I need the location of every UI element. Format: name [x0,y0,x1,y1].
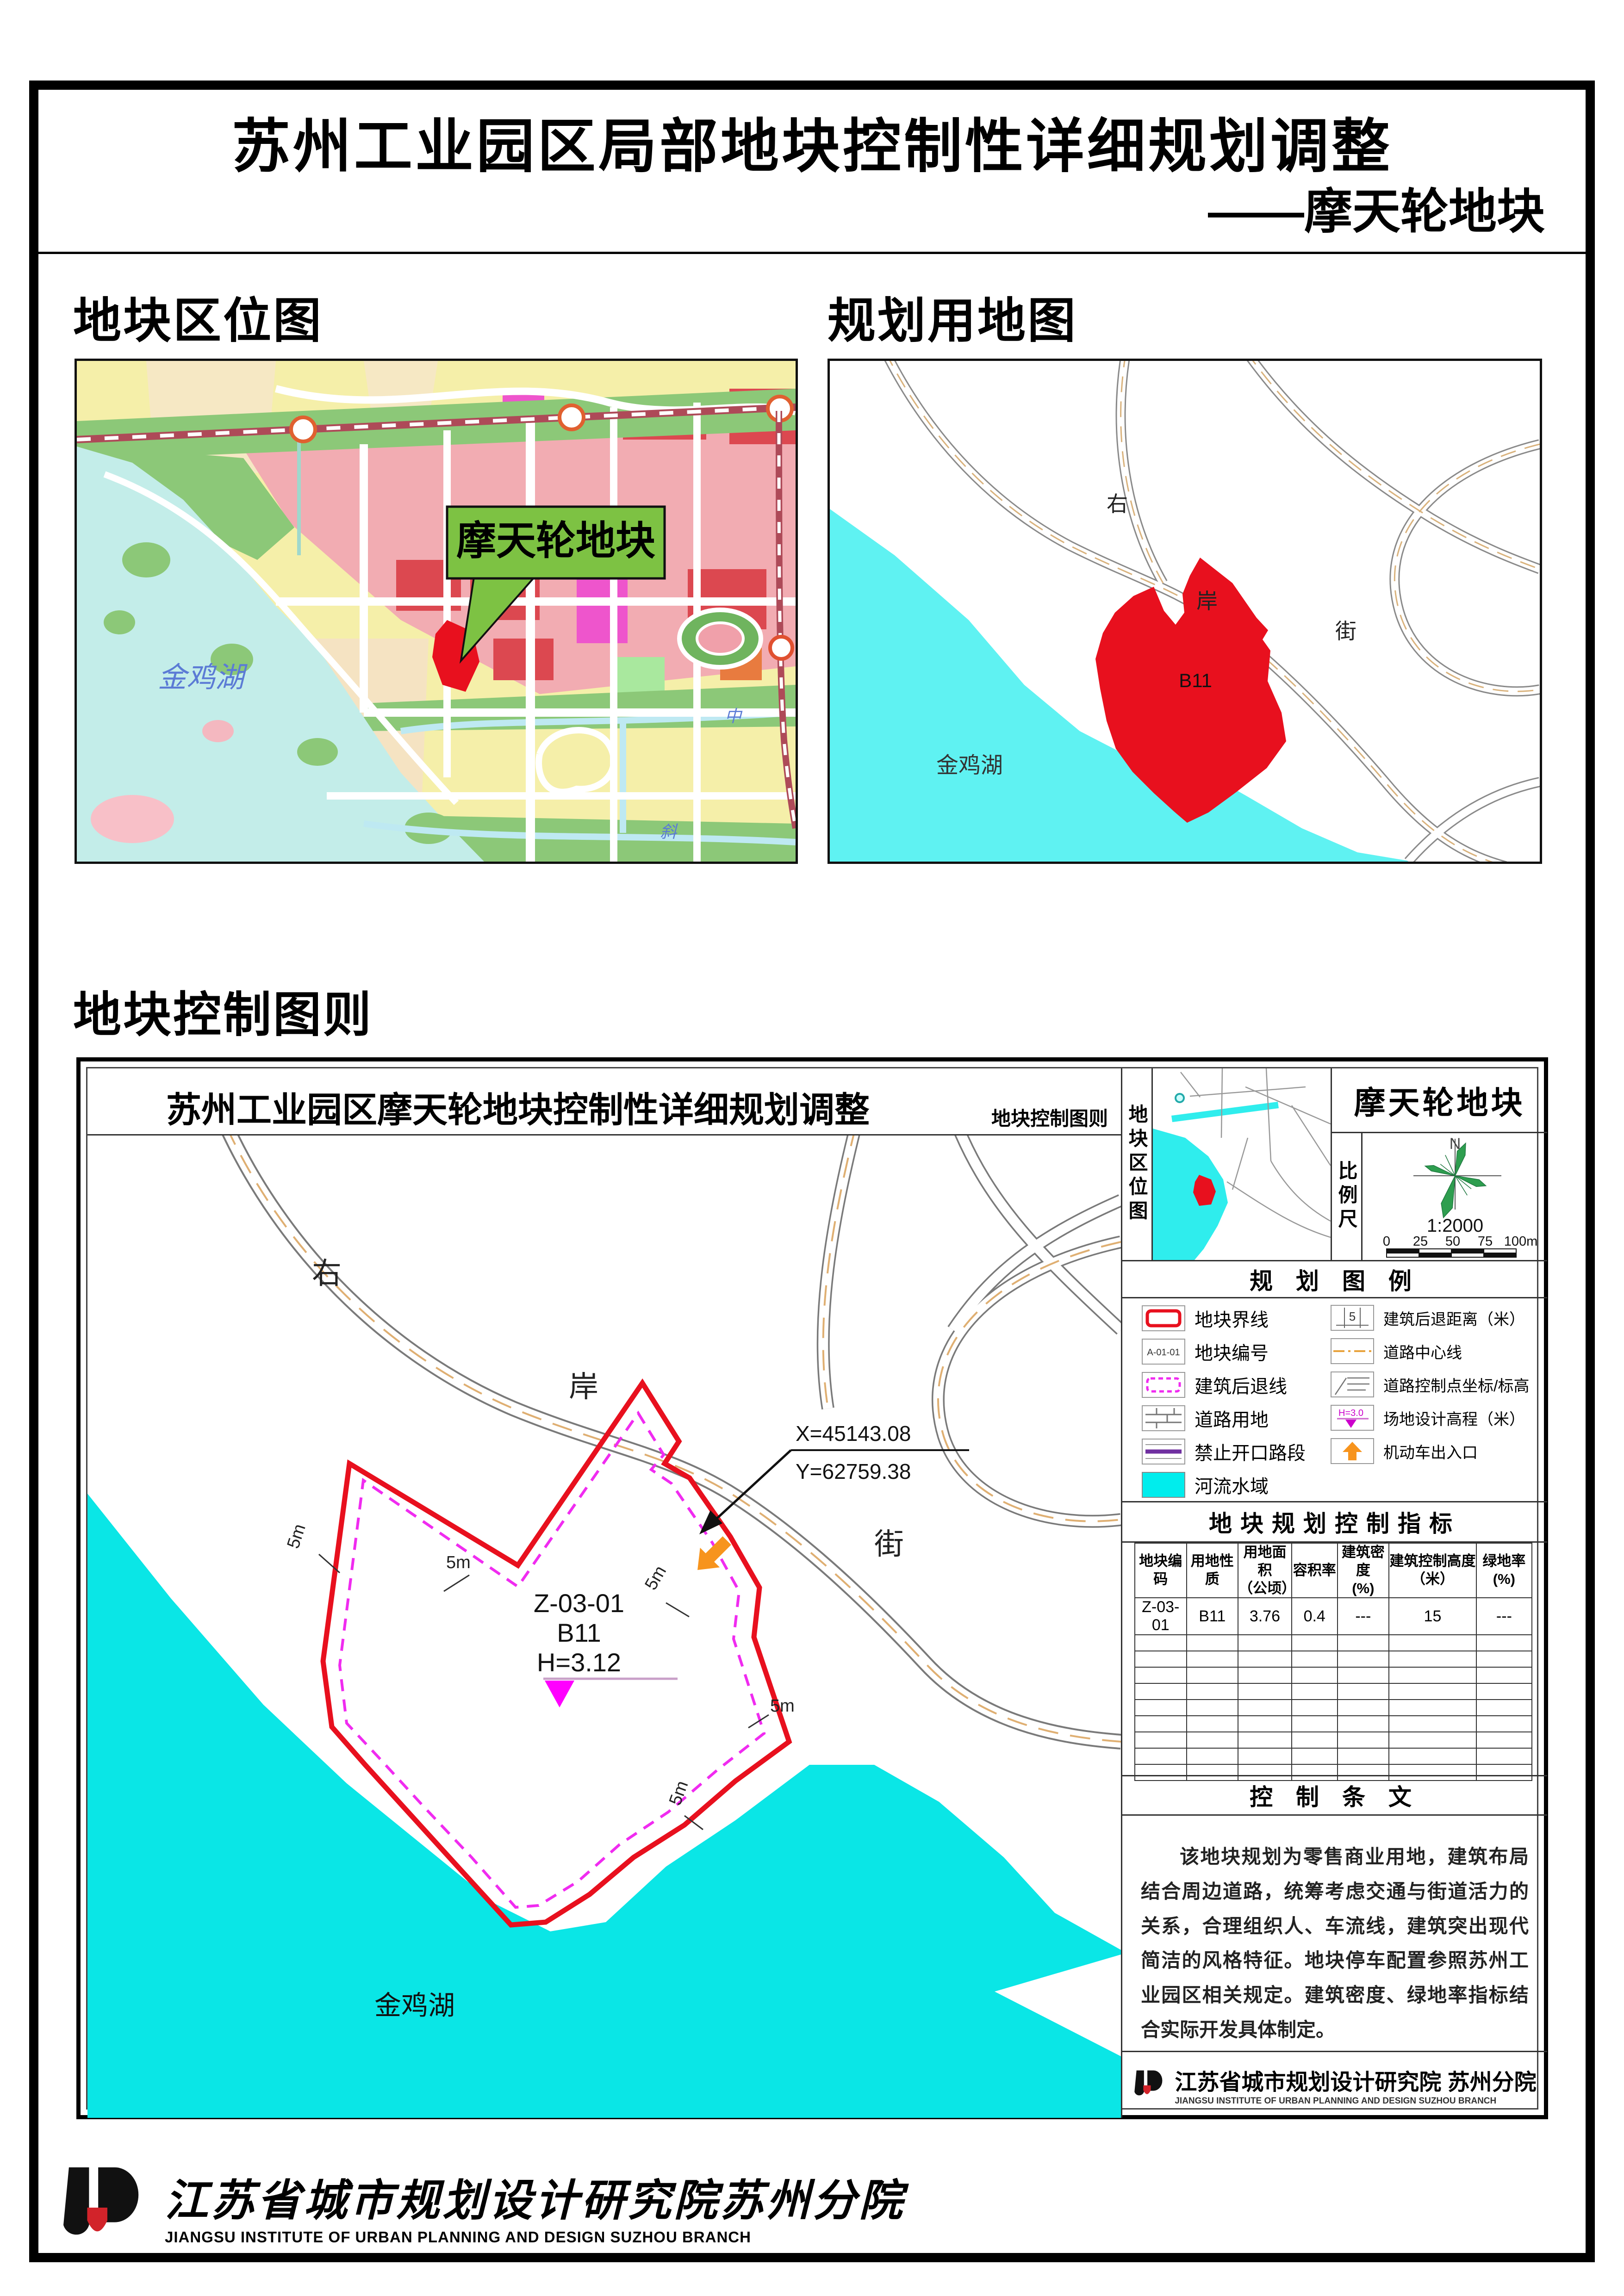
footer-logo-icon [59,2166,152,2248]
location-map: 摩天轮地块 金鸡湖 中 斜 [75,359,798,864]
svg-text:A-01-01: A-01-01 [1147,1347,1180,1358]
vehicle-entrance-icon [1331,1438,1374,1464]
panel-scale-label: 比例尺 [1332,1133,1363,1261]
col-header: 地块编码 [1135,1543,1187,1598]
control-chart-frame: 苏州工业园区摩天轮地块控制性详细规划调整 地块控制图则 [76,1057,1548,2119]
water-area-icon [1142,1472,1185,1498]
page-subtitle: ——摩天轮地块 [56,172,1545,242]
institute-name-cn: 江苏省城市规划设计研究院 苏州分院 [1175,2064,1536,2096]
legend-label: 建筑后退线 [1195,1371,1287,1398]
control-chart-inner-frame: 苏州工业园区摩天轮地块控制性详细规划调整 地块控制图则 [86,1067,1538,2110]
svg-text:5m: 5m [770,1696,795,1716]
empty-row [1135,1651,1532,1667]
legend-title: 规 划 图 例 [1122,1261,1547,1298]
landuse-map: B11 右 岸 街 金鸡湖 [828,359,1542,864]
scale-ratio: 1:2000 [1427,1216,1483,1236]
svg-text:X=45143.08: X=45143.08 [796,1421,911,1446]
landuse-map-road-char-3: 街 [1335,619,1356,643]
site-elevation-icon: H=3.0 [1331,1405,1374,1431]
provisions-text: 该地块规划为零售商业用地，建筑布局结合周边道路，统筹考虑交通与街道活力的关系，合… [1141,1840,1529,2048]
location-map-callout-label: 摩天轮地块 [456,519,655,563]
panel-title-cell: 摩天轮地块 [1332,1068,1547,1133]
control-drawing-graphic: Z-03-01 B11 H=3.12 X=45143.08 Y=62759.38… [87,1136,1121,2118]
svg-text:5: 5 [1349,1309,1356,1323]
col-header: 建筑密度(%) [1338,1543,1389,1598]
chart-frame-subtitle: 地块控制图则 [991,1103,1108,1131]
svg-text:B11: B11 [557,1618,601,1647]
section-label-control-chart: 地块控制图则 [73,975,373,1045]
legend-label: 地块编号 [1195,1338,1269,1365]
legend-body: 地块界线 A-01-01 地块编号 建筑后退线 道路用地 禁止开口路段 河流水域 [1122,1298,1547,1501]
svg-text:50: 50 [1445,1234,1460,1249]
legend-label: 河流水域 [1195,1471,1269,1498]
page-title: 苏州工业园区局部地块控制性详细规划调整 [56,99,1569,184]
svg-text:25: 25 [1413,1234,1428,1249]
location-map-roundabout [679,610,761,667]
setback-distance-icon: 5 [1331,1305,1374,1331]
legend-label: 机动车出入口 [1383,1440,1478,1463]
svg-text:75: 75 [1478,1234,1493,1249]
legend-label: 道路中心线 [1383,1340,1462,1363]
svg-text:5m: 5m [446,1553,471,1572]
svg-text:0: 0 [1383,1234,1390,1249]
legend-label: 场地设计高程（米） [1383,1407,1525,1429]
svg-text:H=3.12: H=3.12 [537,1648,621,1677]
panel-compass-scale: N 1:2000 0 25 50 75 100m [1363,1133,1547,1261]
drawing-road-char-1: 右 [312,1257,342,1290]
svg-text:Z-03-01: Z-03-01 [534,1589,624,1618]
svg-text:N: N [1450,1135,1461,1153]
panel-location-thumb-label: 地块区位图 [1122,1068,1153,1261]
svg-text:100m: 100m [1504,1234,1538,1249]
institute-logo-icon [1133,2070,1167,2100]
empty-row [1135,1667,1532,1683]
section-label-location-map: 地块区位图 [73,281,323,351]
indicator-data-row: Z-03-01 B11 3.76 0.4 --- 15 --- [1135,1598,1532,1635]
legend-label: 地块界线 [1195,1305,1269,1332]
footer-logo-block: 江苏省城市规划设计研究院苏州分院 JIANGSU INSTITUTE OF UR… [59,2166,905,2248]
drawing-road-char-2: 岸 [569,1370,598,1403]
plot-boundary-icon [1142,1305,1185,1331]
road-control-point-icon [1331,1371,1374,1397]
landuse-map-road-char-2: 岸 [1196,589,1218,613]
no-access-segment-icon [1142,1439,1185,1464]
landuse-map-lake-label: 金鸡湖 [936,753,1003,778]
setback-line-icon [1142,1372,1185,1398]
footer-name-cn: 江苏省城市规划设计研究院苏州分院 [165,2166,905,2228]
legend-label: 建筑后退距离（米） [1383,1307,1525,1329]
landuse-map-parcel-code: B11 [1179,670,1212,691]
provisions-title: 控 制 条 文 [1122,1775,1547,1816]
institute-name-en: JIANGSU INSTITUTE OF URBAN PLANNING AND … [1175,2096,1536,2106]
col-header: 用地性质 [1187,1543,1238,1598]
section-label-landuse-map: 规划用地图 [828,281,1077,351]
col-header: 绿地率(%) [1476,1543,1532,1598]
empty-row [1135,1700,1532,1716]
control-drawing: Z-03-01 B11 H=3.12 X=45143.08 Y=62759.38… [87,1136,1122,2118]
panel-minimap [1153,1068,1332,1261]
plot-number-icon: A-01-01 [1142,1339,1185,1365]
legend-label: 禁止开口路段 [1195,1438,1306,1465]
empty-row [1135,1635,1532,1651]
landuse-map-graphic: B11 右 岸 街 金鸡湖 [830,361,1540,862]
location-map-river-label-mid: 中 [725,707,743,726]
location-map-graphic: 摩天轮地块 金鸡湖 中 斜 [77,361,796,862]
institute-strip: 江苏省城市规划设计研究院 苏州分院 JIANGSU INSTITUTE OF U… [1122,2051,1547,2118]
compass-scale-graphic: N 1:2000 0 25 50 75 100m [1363,1133,1547,1260]
legend-label: 道路用地 [1195,1405,1269,1432]
legend-label: 道路控制点坐标/标高 [1383,1373,1529,1396]
provisions-body: 该地块规划为零售商业用地，建筑布局结合周边道路，统筹考虑交通与街道活力的关系，合… [1122,1816,1547,2051]
indicators-table-wrap: 地块编码 用地性质 用地面积（公顷） 容积率 建筑密度(%) 建筑控制高度（米）… [1134,1543,1537,1781]
drawing-lake-label: 金鸡湖 [374,1991,455,2021]
location-map-lake-label: 金鸡湖 [158,662,248,694]
indicators-title: 地块规划控制指标 [1122,1501,1547,1543]
indicators-table: 地块编码 用地性质 用地面积（公顷） 容积率 建筑密度(%) 建筑控制高度（米）… [1134,1543,1532,1781]
drawing-road-char-3: 街 [874,1527,904,1561]
title-separator [38,252,1586,254]
location-map-river-label-xie: 斜 [660,822,678,841]
svg-text:Y=62759.38: Y=62759.38 [796,1459,911,1483]
empty-row [1135,1716,1532,1732]
col-header: 建筑控制高度（米） [1389,1543,1476,1598]
footer-name-en: JIANGSU INSTITUTE OF URBAN PLANNING AND … [165,2228,905,2246]
col-header: 用地面积（公顷） [1238,1543,1292,1598]
panel-title: 摩天轮地块 [1354,1077,1525,1123]
svg-text:H=3.0: H=3.0 [1338,1408,1363,1418]
empty-row [1135,1748,1532,1764]
scale-bar: 0 25 50 75 100m [1383,1234,1537,1257]
north-compass-icon: N [1412,1134,1501,1227]
chart-frame-title: 苏州工业园区摩天轮地块控制性详细规划调整 [166,1081,870,1132]
road-centerline-icon [1331,1338,1374,1364]
col-header: 容积率 [1292,1543,1338,1598]
panel-minimap-graphic [1153,1068,1331,1260]
road-land-icon [1142,1405,1185,1431]
minimap-station-icon [1176,1094,1184,1102]
empty-row [1135,1683,1532,1700]
empty-row [1135,1732,1532,1748]
chart-title-row: 苏州工业园区摩天轮地块控制性详细规划调整 地块控制图则 [87,1068,1122,1136]
landuse-map-road-char-1: 右 [1107,492,1128,516]
